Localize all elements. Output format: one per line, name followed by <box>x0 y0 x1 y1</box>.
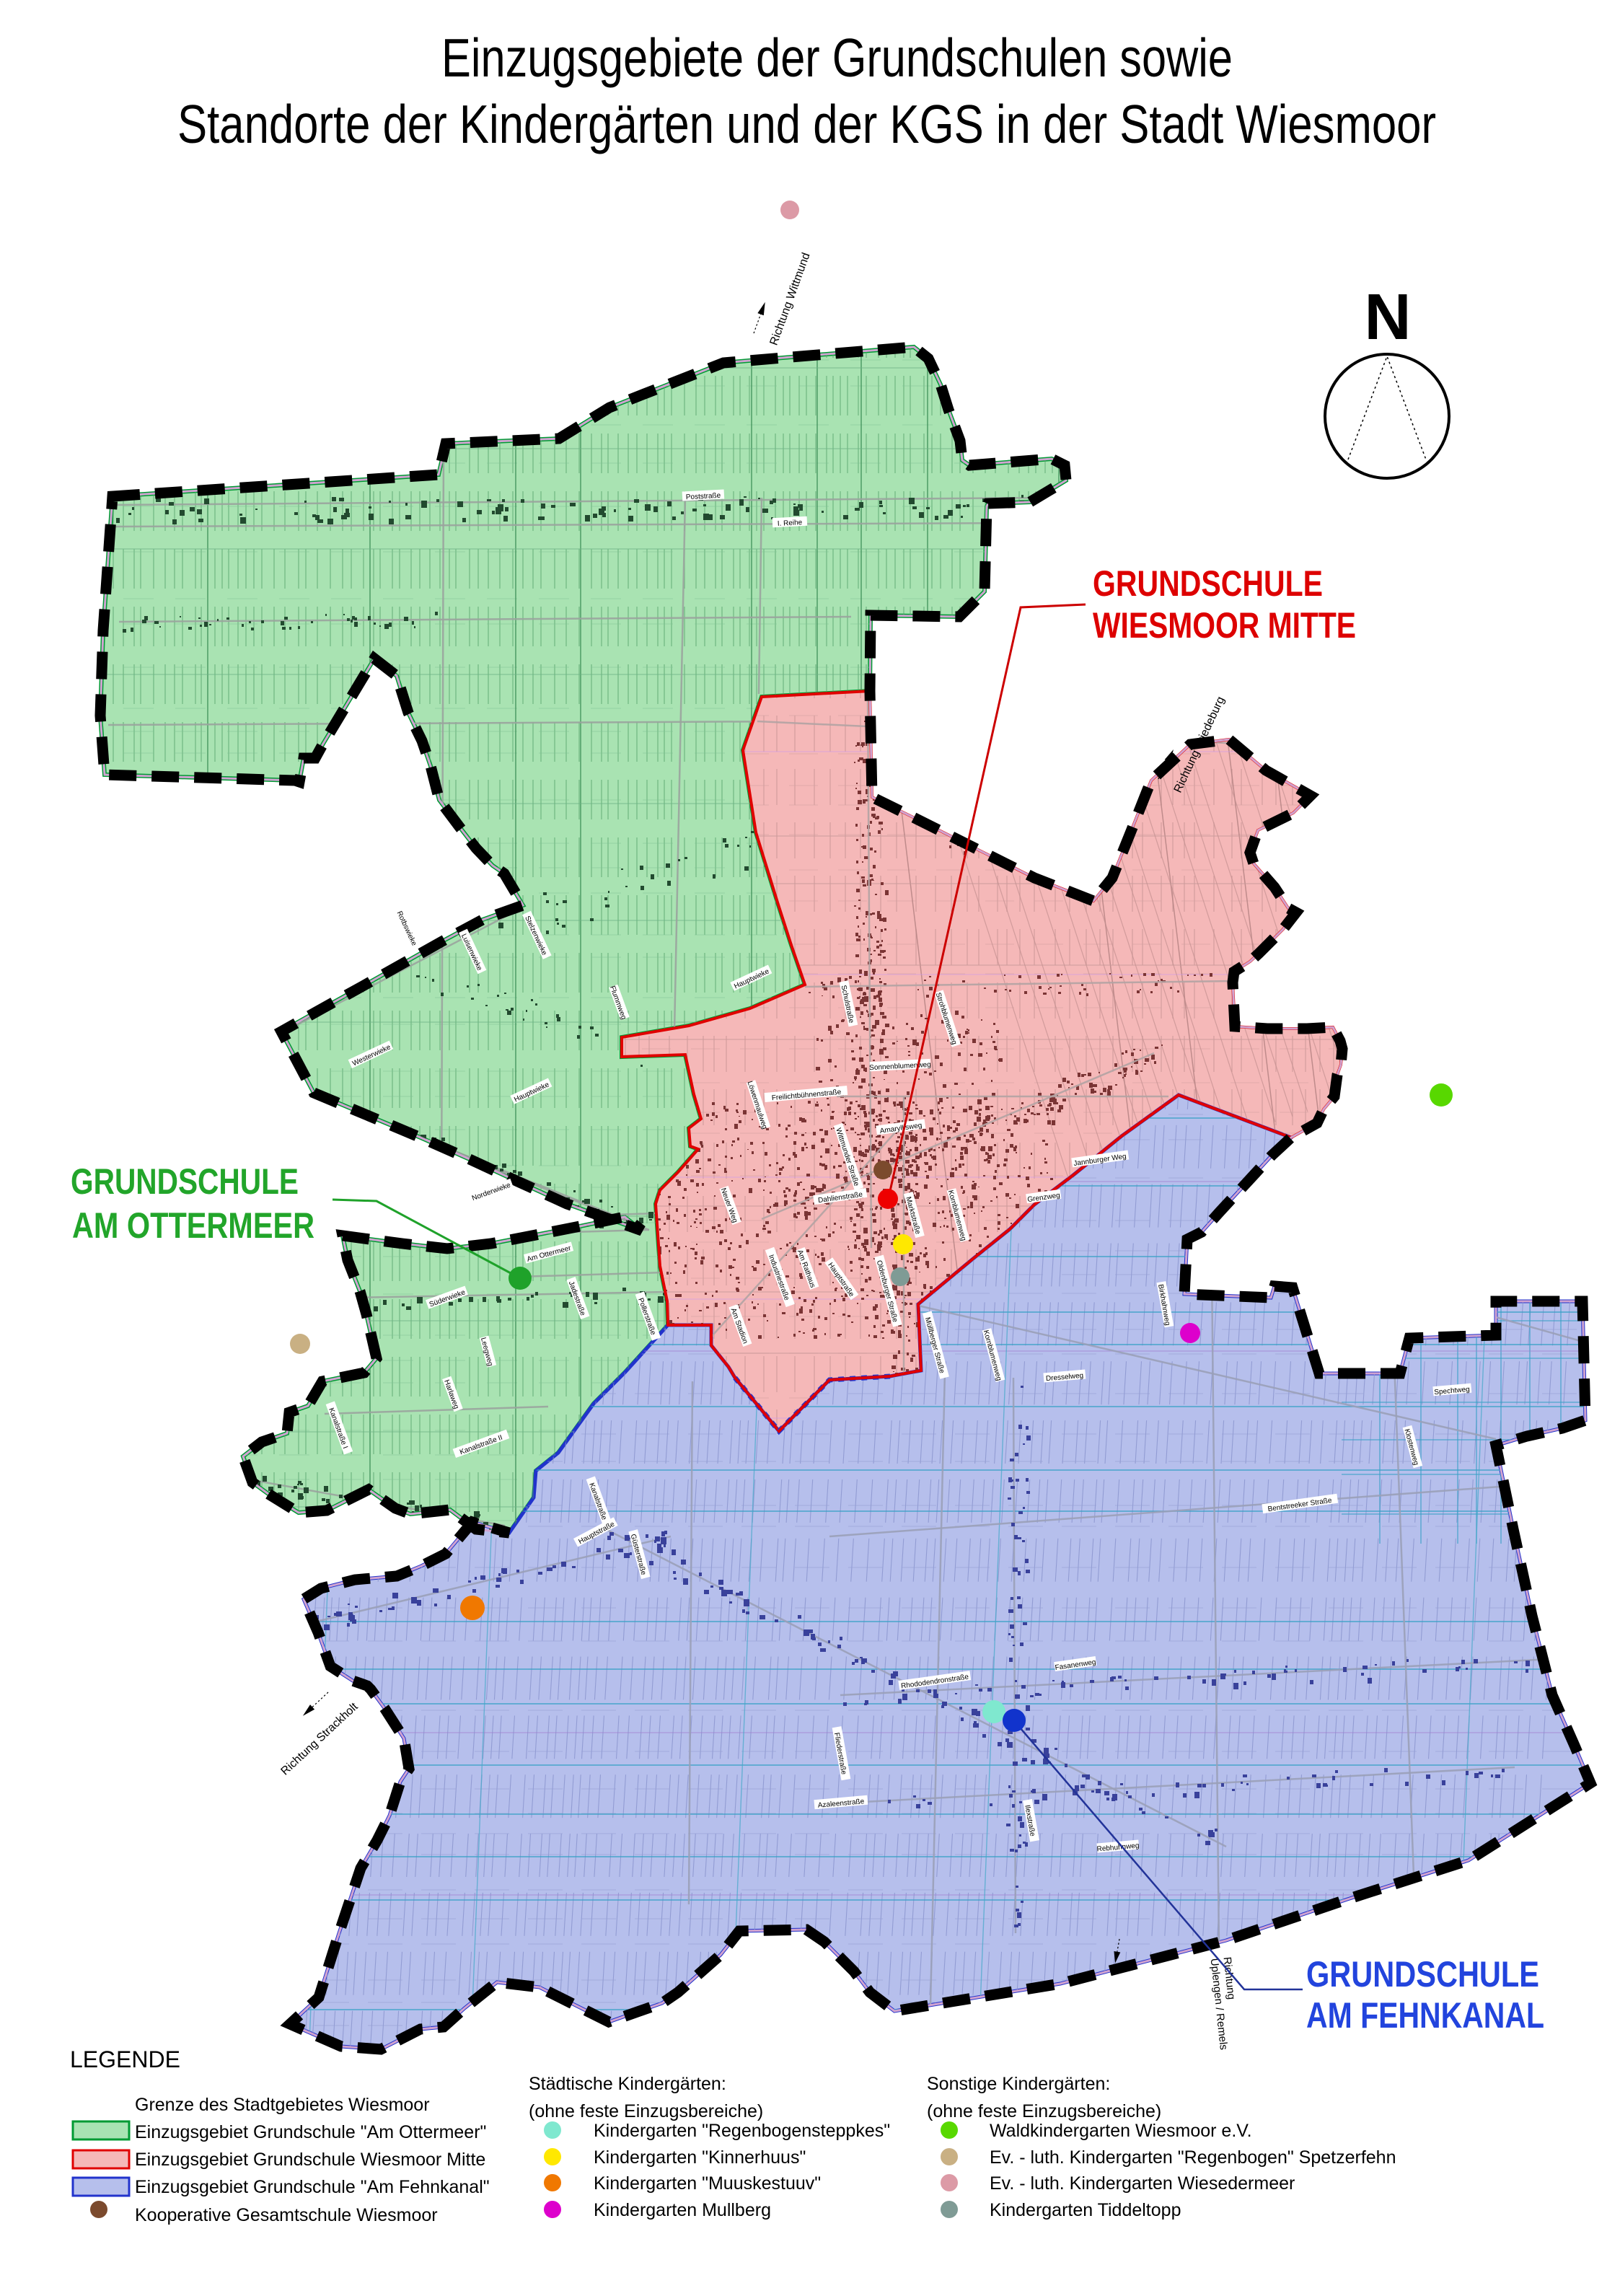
svg-text:(ohne feste Einzugsbereiche): (ohne feste Einzugsbereiche) <box>927 2101 1161 2121</box>
svg-text:AM OTTERMEER: AM OTTERMEER <box>72 1205 314 1246</box>
svg-text:Sonstige Kindergärten:: Sonstige Kindergärten: <box>927 2074 1110 2094</box>
svg-text:GRUNDSCHULE: GRUNDSCHULE <box>1093 563 1323 604</box>
svg-text:LEGENDE: LEGENDE <box>70 2046 180 2072</box>
svg-text:AM FEHNKANAL: AM FEHNKANAL <box>1306 1995 1544 2036</box>
svg-text:GRUNDSCHULE: GRUNDSCHULE <box>1306 1954 1539 1994</box>
svg-text:(ohne feste Einzugsbereiche): (ohne feste Einzugsbereiche) <box>529 2101 763 2121</box>
svg-text:Kooperative Gesamtschule Wiesm: Kooperative Gesamtschule Wiesmoor <box>135 2205 438 2225</box>
svg-text:I. Reihe: I. Reihe <box>778 519 803 528</box>
svg-text:Einzugsgebiet Grundschule Wies: Einzugsgebiet Grundschule Wiesmoor Mitte <box>135 2150 485 2170</box>
svg-text:Kindergarten Mullberg: Kindergarten Mullberg <box>594 2200 771 2220</box>
svg-text:Ev. - luth. Kindergarten "Rege: Ev. - luth. Kindergarten "Regenbogen" Sp… <box>990 2147 1396 2168</box>
svg-text:Kindergarten "Kinnerhuus": Kindergarten "Kinnerhuus" <box>594 2147 806 2168</box>
svg-text:N: N <box>1365 281 1412 353</box>
svg-text:Kindergarten Tiddeltopp: Kindergarten Tiddeltopp <box>990 2200 1181 2220</box>
svg-text:Einzugsgebiet Grundschule "Am: Einzugsgebiet Grundschule "Am Fehnkanal" <box>135 2177 490 2197</box>
svg-text:Kindergarten "Muuskestuuv": Kindergarten "Muuskestuuv" <box>594 2173 821 2194</box>
svg-text:Grenze des Stadtgebietes Wiesm: Grenze des Stadtgebietes Wiesmoor <box>135 2095 430 2115</box>
svg-text:Einzugsgebiet Grundschule "Am: Einzugsgebiet Grundschule "Am Ottermeer" <box>135 2122 486 2142</box>
svg-text:Einzugsgebiete der Grundschule: Einzugsgebiete der Grundschulen sowie <box>441 27 1233 88</box>
svg-text:Ev. - luth. Kindergarten Wiese: Ev. - luth. Kindergarten Wiesedermeer <box>990 2173 1295 2194</box>
svg-text:GRUNDSCHULE: GRUNDSCHULE <box>71 1161 299 1202</box>
svg-text:Kindergarten "Regenbogensteppk: Kindergarten "Regenbogensteppkes" <box>594 2121 890 2141</box>
svg-text:Städtische Kindergärten:: Städtische Kindergärten: <box>529 2074 726 2094</box>
svg-text:Standorte der Kindergärten und: Standorte der Kindergärten und der KGS i… <box>177 94 1436 154</box>
svg-text:Waldkindergarten Wiesmoor e.V.: Waldkindergarten Wiesmoor e.V. <box>990 2121 1252 2141</box>
svg-text:WIESMOOR MITTE: WIESMOOR MITTE <box>1093 605 1356 646</box>
